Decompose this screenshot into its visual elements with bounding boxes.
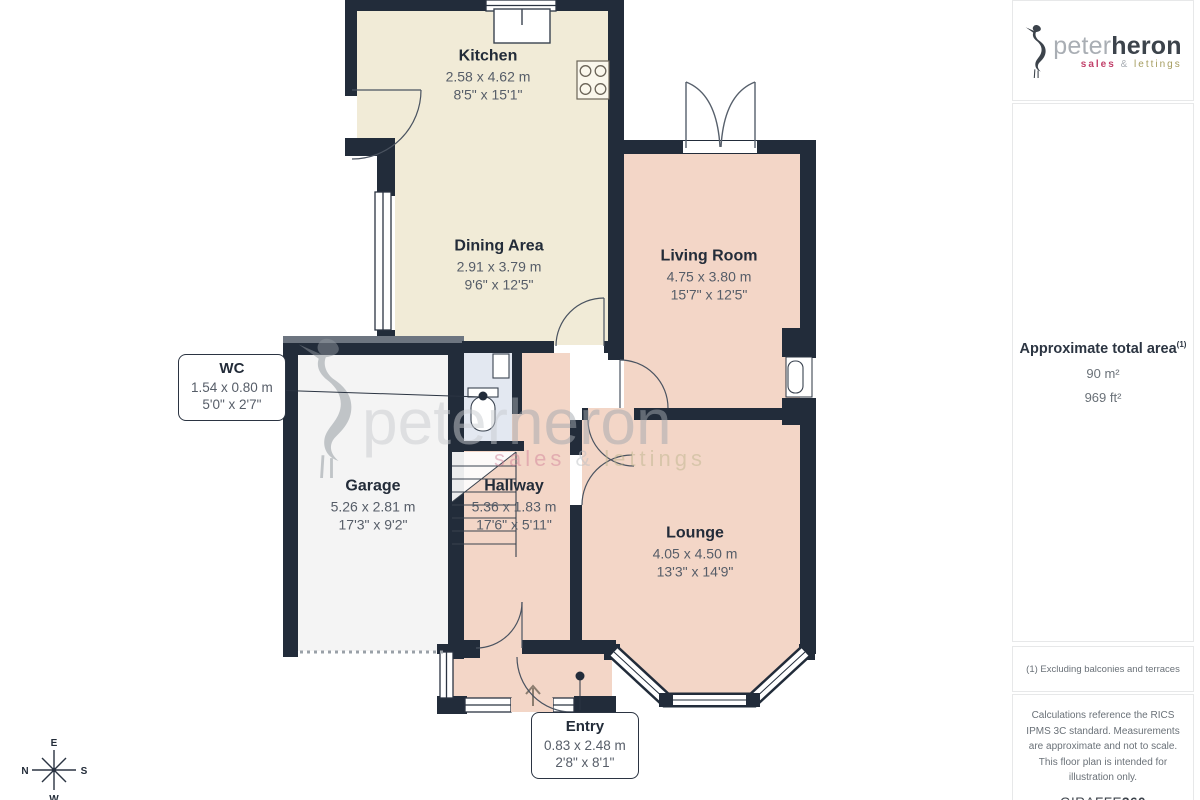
living-floor	[624, 154, 800, 408]
floorplan-canvas: peterheron sales & lettings E N S	[0, 0, 1200, 800]
brand-name: peterheron	[1053, 32, 1181, 61]
kitchen-floor	[357, 11, 608, 156]
compass-right: S	[81, 766, 88, 777]
callout-entry: Entry 0.83 x 2.48 m 2'8" x 8'1"	[531, 712, 639, 779]
compass-bottom: W	[49, 794, 59, 800]
heron-icon	[1024, 24, 1050, 78]
dining-floor	[395, 154, 608, 345]
total-area-box: Approximate total area(1) 90 m² 969 ft²	[1012, 103, 1194, 642]
total-area-title: Approximate total area(1)	[1020, 340, 1187, 357]
compass-top: E	[51, 738, 58, 749]
compass-left: N	[21, 766, 28, 777]
brand-logo-box: peterheron sales & lettings	[1012, 0, 1194, 101]
fireplace-niche	[786, 357, 812, 397]
total-area-sqm: 90 m²	[1086, 366, 1119, 381]
kitchen-hob	[577, 61, 609, 99]
disclaimer-box: Calculations reference the RICS IPMS 3C …	[1012, 694, 1194, 800]
callout-wc: WC 1.54 x 0.80 m 5'0" x 2'7"	[178, 354, 286, 421]
area-footnote-marker: (1)	[1177, 340, 1187, 349]
giraffe360-logo: GIRAFFE360	[1022, 795, 1184, 800]
brand-logo: peterheron sales & lettings	[1024, 24, 1181, 78]
floorplan-drawing: peterheron sales & lettings E N S	[0, 0, 1012, 800]
kitchen-sink	[494, 9, 550, 43]
french-doors	[683, 82, 757, 153]
total-area-sqft: 969 ft²	[1085, 390, 1122, 405]
disclaimer-text: Calculations reference the RICS IPMS 3C …	[1022, 708, 1184, 786]
compass: E N S W	[21, 738, 87, 800]
footnote-box: (1) Excluding balconies and terraces	[1012, 646, 1194, 692]
watermark-tagline: sales & lettings	[494, 446, 706, 471]
sidebar: peterheron sales & lettings Approximate …	[1012, 0, 1196, 800]
